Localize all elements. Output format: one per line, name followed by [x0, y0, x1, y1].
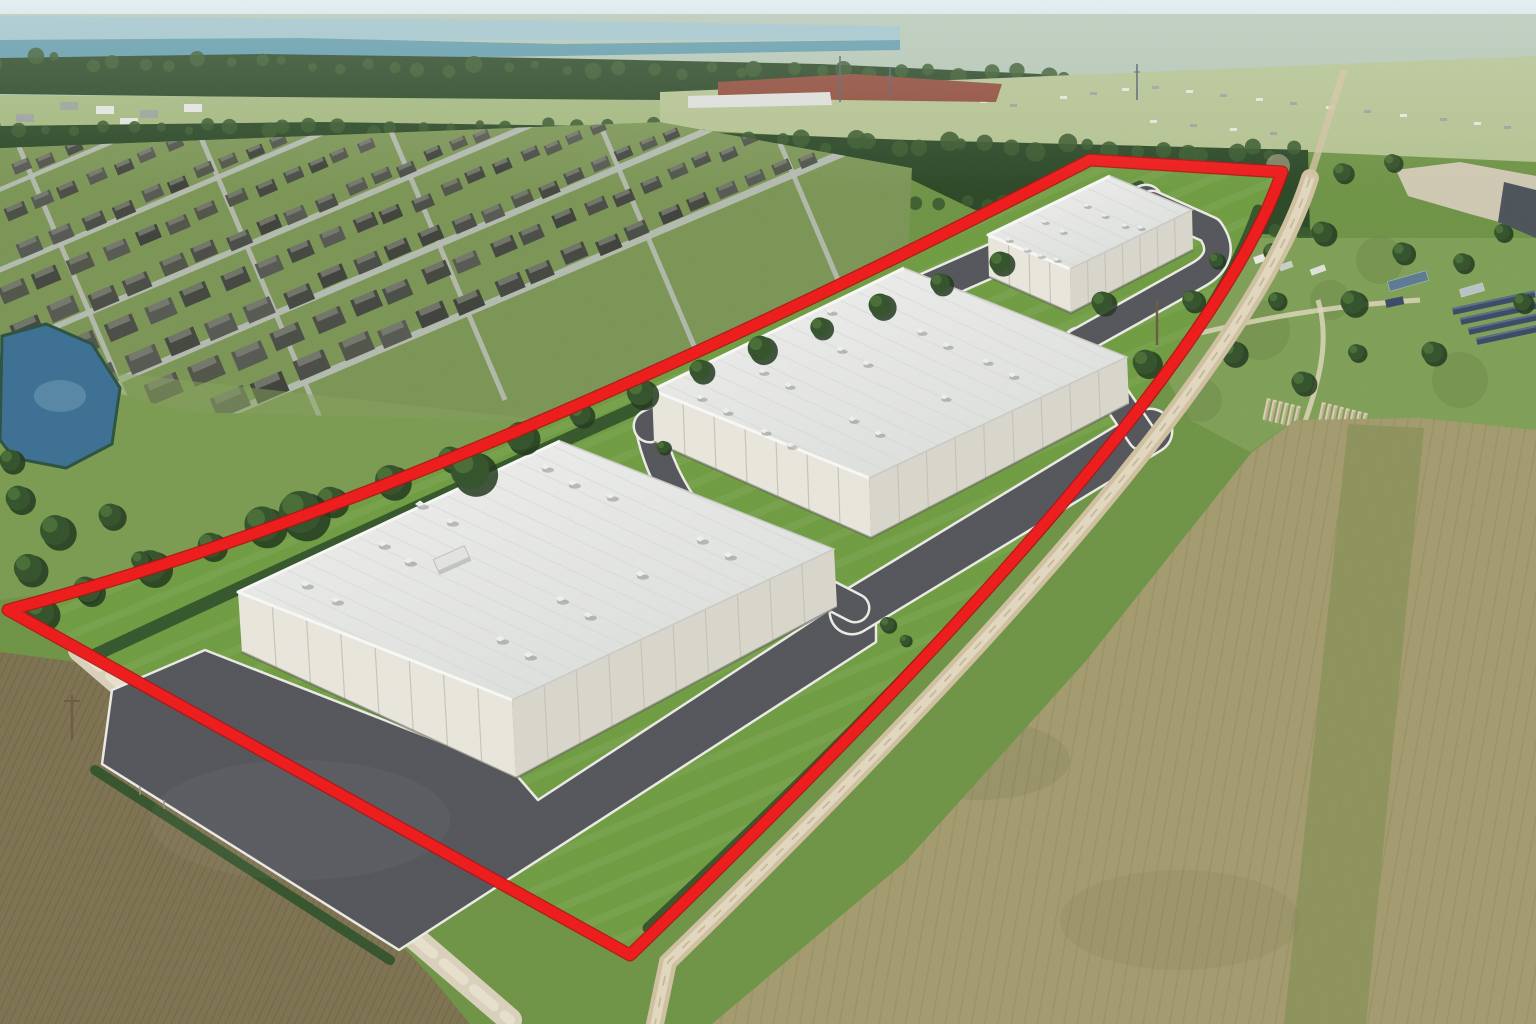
aerial-photo: Aerial rendering of three white warehous…	[0, 0, 1536, 1024]
aerial-photo-canvas	[0, 0, 1536, 1024]
photo-grain	[0, 0, 1536, 1024]
